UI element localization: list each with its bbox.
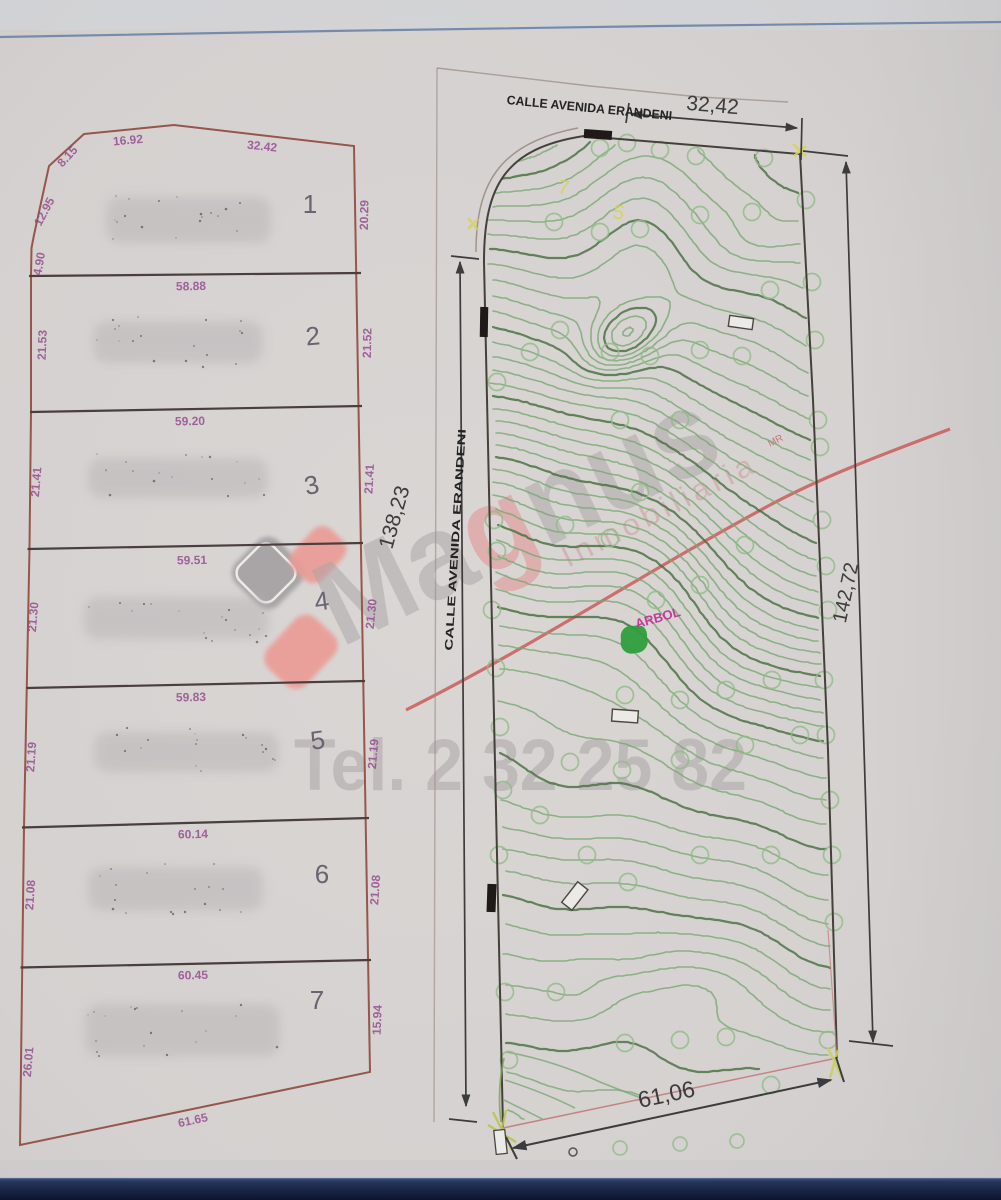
svg-text:21.19: 21.19 (365, 738, 382, 769)
svg-text:60.14: 60.14 (178, 827, 209, 842)
svg-text:32,42: 32,42 (685, 92, 739, 119)
svg-text:59.83: 59.83 (176, 690, 207, 705)
svg-text:7: 7 (310, 985, 324, 1015)
svg-text:59.51: 59.51 (177, 553, 208, 568)
svg-text:20.29: 20.29 (357, 200, 372, 231)
svg-text:21.52: 21.52 (360, 328, 375, 359)
svg-text:21.41: 21.41 (28, 466, 45, 497)
svg-text:2: 2 (304, 320, 321, 351)
svg-text:58.88: 58.88 (176, 279, 207, 294)
svg-text:21.19: 21.19 (23, 741, 39, 772)
svg-text:21.53: 21.53 (35, 329, 50, 360)
svg-text:21.41: 21.41 (361, 463, 377, 494)
svg-text:15.94: 15.94 (370, 1004, 385, 1035)
svg-text:60.45: 60.45 (178, 968, 209, 983)
svg-text:21.08: 21.08 (367, 874, 383, 905)
svg-text:21.08: 21.08 (22, 879, 38, 910)
svg-text:16.92: 16.92 (112, 132, 143, 149)
svg-text:1: 1 (303, 189, 317, 219)
svg-text:26.01: 26.01 (20, 1046, 37, 1077)
svg-text:59.20: 59.20 (175, 414, 206, 429)
svg-text:6: 6 (315, 859, 329, 889)
svg-text:21.30: 21.30 (25, 601, 42, 632)
